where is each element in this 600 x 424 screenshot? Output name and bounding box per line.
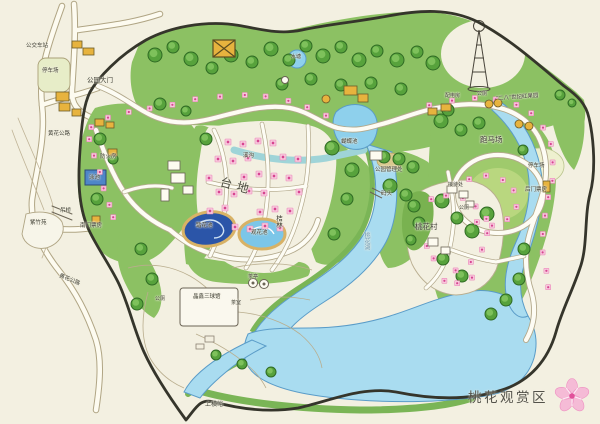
park-map-drawing bbox=[0, 0, 600, 424]
x-roof-pavilion bbox=[213, 40, 235, 57]
map-title: 桃花观赏区 bbox=[468, 386, 548, 406]
peach-blossom-icon bbox=[552, 376, 592, 416]
park-map: 公交车站停车场公园大门黄花公路防火房泳池吊桥南门票房紫竹苑黄花公路台地桔林踏花池… bbox=[0, 0, 600, 424]
map-title-box: 桃花观赏区 bbox=[468, 376, 592, 416]
